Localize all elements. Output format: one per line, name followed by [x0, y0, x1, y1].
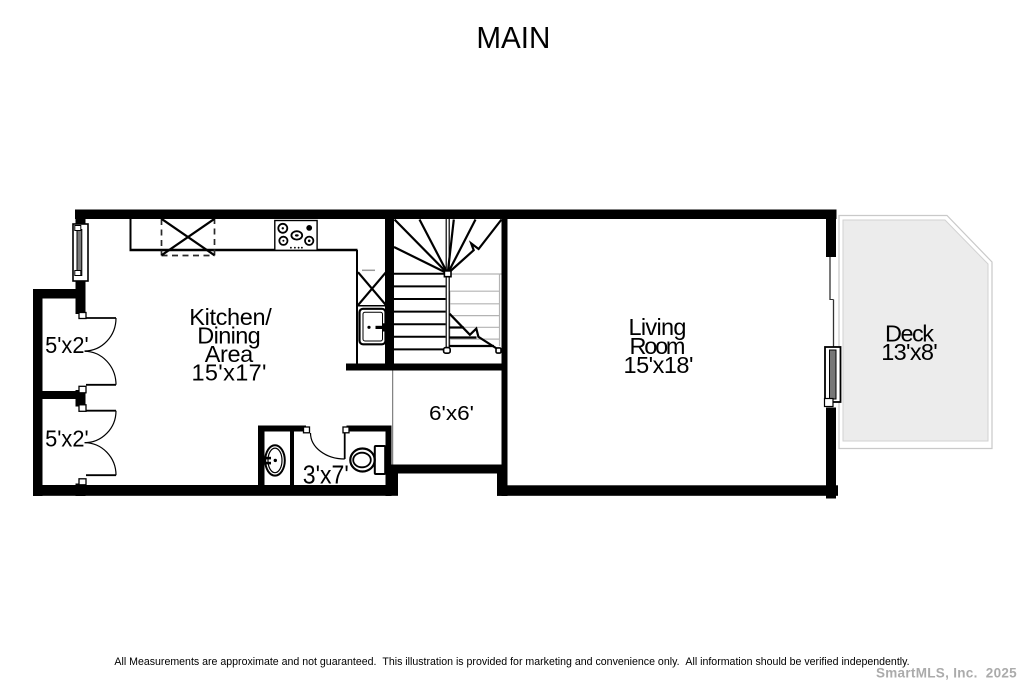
svg-text:SmartMLS, Inc. 2025: SmartMLS, Inc. 2025 [876, 666, 1017, 681]
svg-text:15'x17': 15'x17' [192, 359, 267, 385]
svg-text:6'x6': 6'x6' [429, 403, 474, 425]
svg-text:All Measurements are approxima: All Measurements are approximate and not… [114, 656, 909, 668]
svg-text:MAIN: MAIN [476, 20, 550, 55]
svg-text:3'x7': 3'x7' [303, 460, 349, 490]
svg-text:5'x2': 5'x2' [45, 426, 89, 452]
svg-text:5'x2': 5'x2' [45, 332, 89, 358]
svg-text:13'x8': 13'x8' [881, 339, 938, 365]
svg-text:15'x18': 15'x18' [624, 352, 694, 378]
